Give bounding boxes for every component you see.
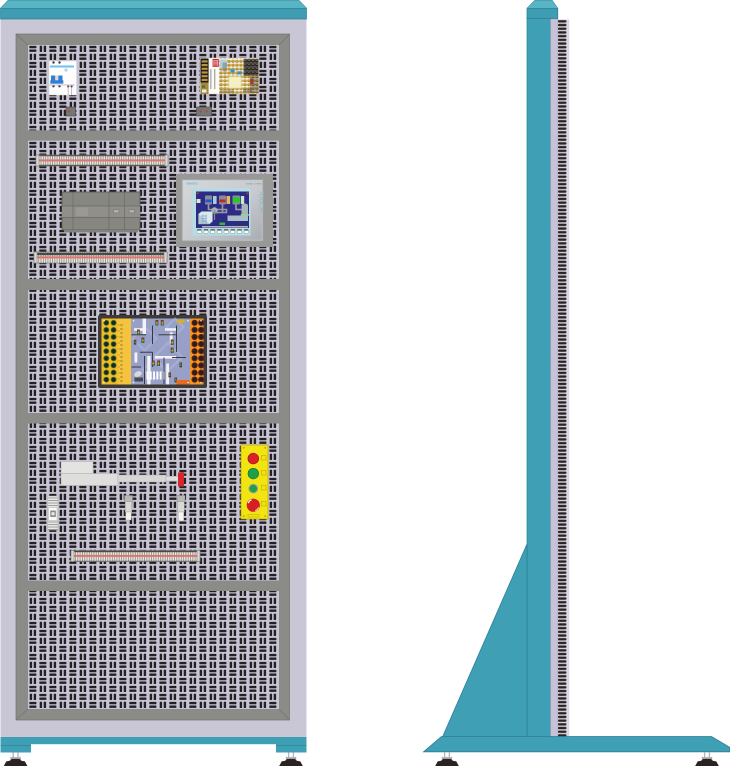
svg-text:SIMATIC PANEL: SIMATIC PANEL bbox=[246, 183, 263, 186]
svg-text:SIEMENS: SIEMENS bbox=[186, 182, 198, 186]
svg-text:TOUCH: TOUCH bbox=[257, 190, 264, 212]
